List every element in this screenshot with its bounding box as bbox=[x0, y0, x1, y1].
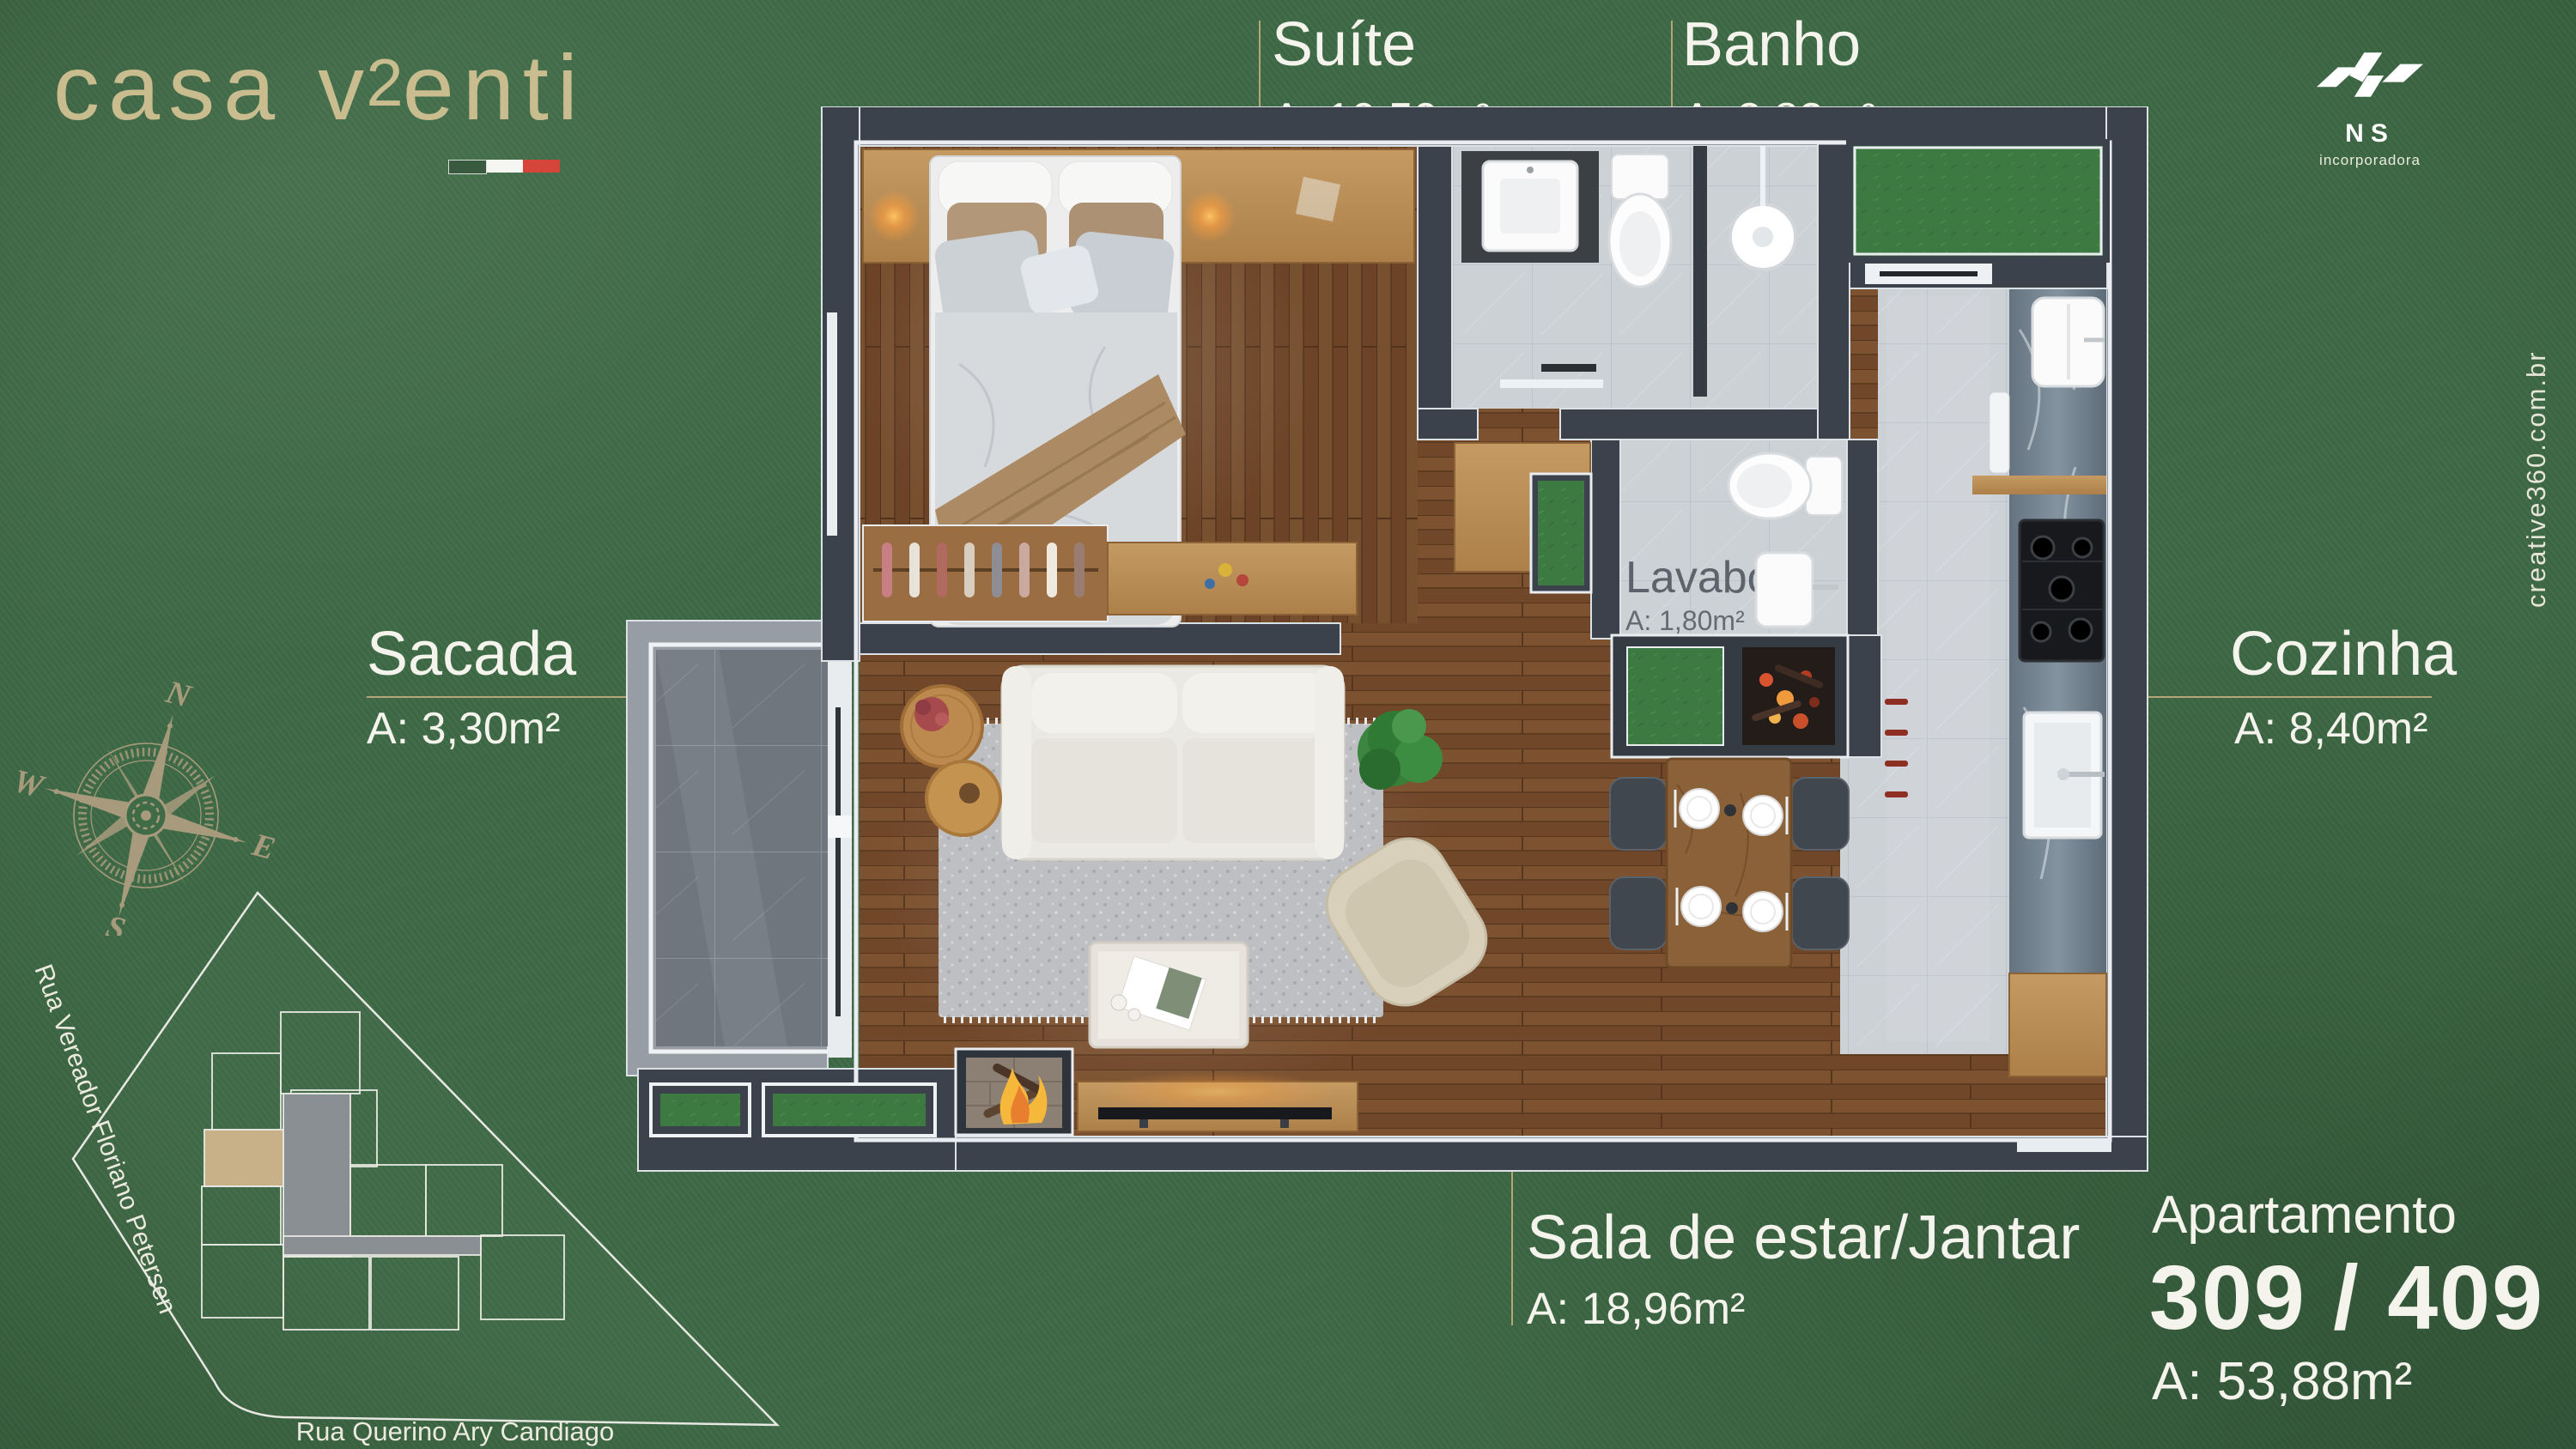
kitchen-shelf bbox=[1972, 476, 2106, 494]
apartment-label: Apartamento bbox=[2152, 1185, 2457, 1246]
flag-green-segment bbox=[448, 160, 487, 174]
brand-logo-part2: enti bbox=[403, 35, 586, 139]
label-sala-area: A: 18,96m² bbox=[1527, 1286, 1745, 1333]
label-lavabo-name: Lavabo bbox=[1625, 553, 1772, 603]
divider-fire-box bbox=[1742, 647, 1835, 745]
bedside-lamp-left bbox=[868, 191, 920, 242]
lot-outline bbox=[73, 893, 777, 1425]
floor-plan: Lavabo A: 1,80m² bbox=[616, 106, 2153, 1175]
wall-banho-bottom-a bbox=[1418, 409, 1478, 440]
ac-unit bbox=[1990, 392, 2009, 473]
wall-banho-left bbox=[1418, 146, 1452, 440]
sideboard bbox=[1108, 543, 1357, 615]
wardrobe bbox=[863, 525, 1108, 621]
kitchen-cabinet bbox=[2009, 973, 2106, 1076]
apartment-numbers: 309 / 409 bbox=[2149, 1246, 2544, 1350]
label-sacada-name: Sacada bbox=[367, 623, 576, 686]
wall-shower-right bbox=[1818, 142, 1850, 440]
lavabo-side-planter bbox=[1531, 474, 1591, 592]
divider-unit bbox=[1612, 635, 1848, 757]
label-cozinha-area: A: 8,40m² bbox=[2234, 706, 2427, 753]
wall-banho-bottom-b bbox=[1560, 409, 1850, 440]
brand-logo: casa v2enti bbox=[53, 41, 586, 134]
ns-logo-mark bbox=[2317, 48, 2423, 101]
compass-letter-n: N bbox=[161, 678, 196, 715]
site-plan: Rua Querino Ary Candiago Rua Vereador Fl… bbox=[0, 867, 816, 1449]
unit-highlight bbox=[204, 1130, 283, 1186]
sofa bbox=[1002, 666, 1344, 859]
tv-console bbox=[1078, 1071, 1358, 1131]
street-label-bottom: Rua Querino Ary Candiago bbox=[296, 1416, 615, 1446]
developer-name: NS bbox=[2313, 119, 2427, 149]
toilet-banho bbox=[1609, 155, 1671, 287]
bedside-lamp-right bbox=[1184, 191, 1236, 242]
balcony-glass-door bbox=[828, 656, 852, 1058]
bedroom-window bbox=[827, 312, 837, 536]
dining-table bbox=[1667, 759, 1791, 967]
brand-logo-part1: casa v bbox=[53, 35, 373, 139]
kitchen-sink bbox=[2024, 712, 2105, 838]
wall-lavabo-right bbox=[1847, 440, 1878, 639]
fireplace bbox=[956, 1049, 1072, 1135]
shower-divider bbox=[1693, 146, 1707, 397]
credit-vertical-text: creative360.com.br bbox=[2521, 41, 2552, 608]
tv bbox=[1098, 1107, 1332, 1119]
kitchen-bottom-window bbox=[2017, 1142, 2111, 1152]
label-sacada-area: A: 3,30m² bbox=[367, 706, 560, 753]
apartment-area: A: 53,88m² bbox=[2152, 1351, 2412, 1412]
italian-flag-bar bbox=[448, 160, 560, 173]
compass-letter-e: E bbox=[248, 827, 275, 867]
wall-lavabo-left bbox=[1591, 440, 1620, 639]
building-corridor-vertical bbox=[283, 1094, 350, 1257]
brand-logo-superscript: 2 bbox=[366, 46, 411, 120]
building-corridor-horizontal bbox=[283, 1236, 481, 1255]
page-background: casa v2enti NS incorporadora creative360… bbox=[0, 0, 2576, 1449]
divider-planter bbox=[1627, 647, 1723, 745]
compass-letter-w: W bbox=[17, 763, 50, 806]
towel-bar bbox=[1500, 379, 1603, 388]
glass-decor bbox=[1296, 177, 1340, 221]
wall-bedroom-bottom bbox=[860, 623, 1340, 654]
developer-tagline: incorporadora bbox=[2313, 152, 2427, 169]
cooktop bbox=[2020, 520, 2104, 661]
wall-right-of-unit bbox=[1844, 635, 1881, 757]
coffee-table bbox=[1090, 943, 1248, 1047]
label-suite-name: Suíte bbox=[1272, 14, 1416, 76]
flag-red-segment bbox=[523, 160, 560, 173]
label-sala-name: Sala de estar/Jantar bbox=[1527, 1207, 2080, 1270]
label-banho-name: Banho bbox=[1682, 14, 1861, 76]
flag-white-segment bbox=[487, 160, 524, 173]
label-lavabo-area: A: 1,80m² bbox=[1625, 605, 1745, 636]
garden-patch bbox=[1850, 142, 2106, 259]
wall-right bbox=[2106, 106, 2148, 1171]
developer-logo-block: NS incorporadora bbox=[2313, 48, 2427, 169]
toilet-lavabo bbox=[1728, 453, 1842, 518]
laundry-sink bbox=[2032, 298, 2105, 386]
label-cozinha-name: Cozinha bbox=[2230, 623, 2457, 686]
